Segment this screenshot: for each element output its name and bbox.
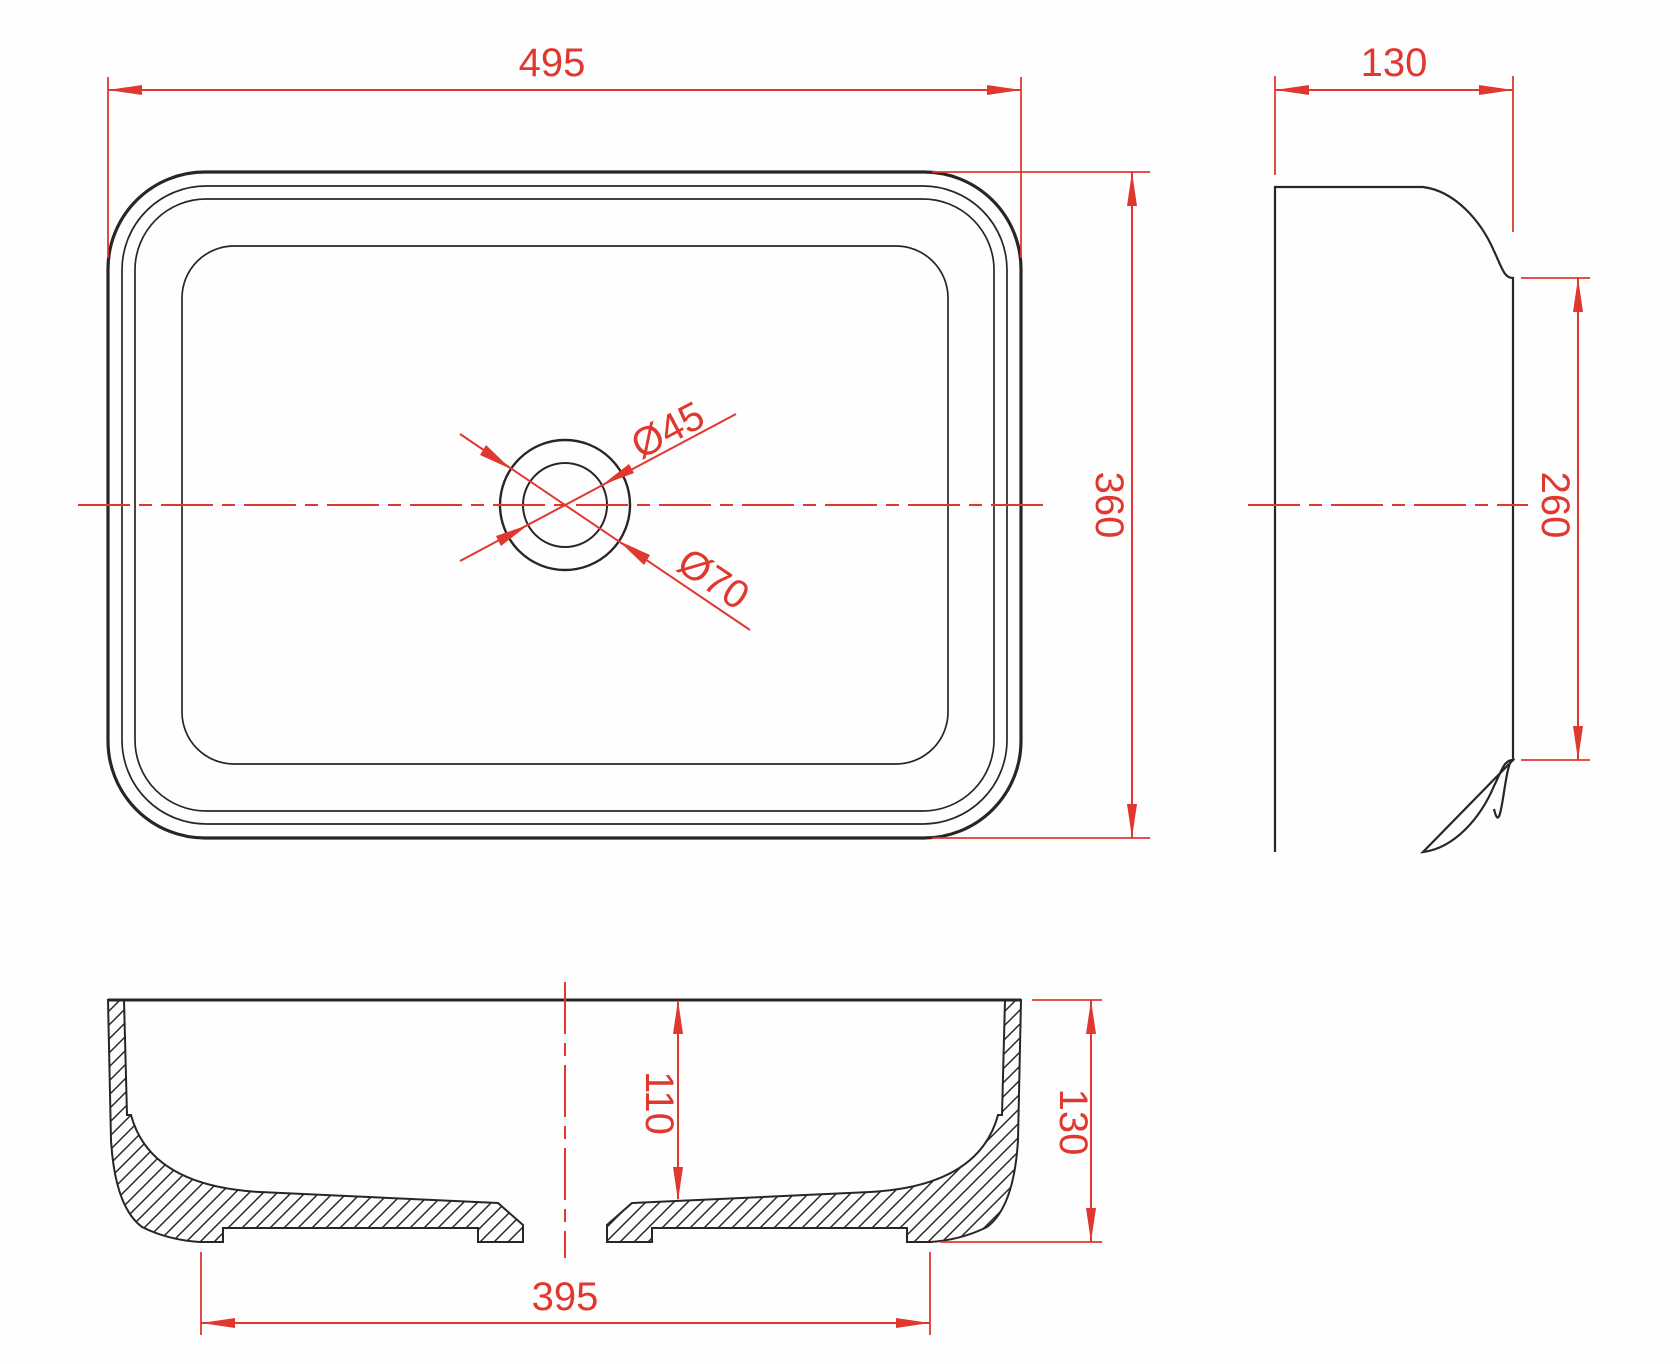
dim-section-bowl-depth: 110 <box>637 1000 683 1201</box>
dim-section-bowl-depth-label: 110 <box>637 1071 681 1135</box>
dim-plan-width-label: 495 <box>519 41 586 85</box>
side-profile-outline <box>1275 187 1513 852</box>
dim-arrow-left <box>201 1318 235 1328</box>
dim-plan-depth-label: 360 <box>1087 472 1131 539</box>
dim-arrow-right <box>1479 85 1513 95</box>
dim-arrow-on-outer-circle-se <box>619 541 650 565</box>
dim-arrow-down <box>673 1167 683 1201</box>
dim-section-base-width-label: 395 <box>532 1275 599 1319</box>
section-left-wall-hatched <box>108 1000 523 1242</box>
section-view: 110 130 395 <box>108 982 1102 1335</box>
dim-side-thickness-label: 130 <box>1361 41 1428 85</box>
dim-plan-width: 495 <box>108 41 1021 258</box>
dim-arrow-down <box>1573 726 1583 760</box>
dim-section-height-label: 130 <box>1051 1089 1095 1156</box>
dim-arrow-right <box>987 85 1021 95</box>
dim-side-thickness: 130 <box>1275 41 1513 232</box>
plan-view: 495 360 Ø45 Ø70 <box>78 41 1150 838</box>
dim-drain-outer-diameter: Ø70 <box>460 434 757 630</box>
dim-arrow-left <box>1275 85 1309 95</box>
dim-drain-inner-label: Ø45 <box>624 393 711 467</box>
dim-side-inner-height-label: 260 <box>1533 472 1577 539</box>
dim-arrow-down <box>1127 804 1137 838</box>
side-view: 130 260 <box>1248 41 1590 852</box>
dim-drain-outer-label: Ø70 <box>670 540 757 619</box>
dim-section-base-width: 395 <box>201 1252 930 1335</box>
dim-drain-inner-diameter: Ø45 <box>460 393 736 561</box>
dim-arrow-on-outer-circle-nw <box>480 445 511 469</box>
dim-arrow-up <box>1127 172 1137 206</box>
dim-side-inner-height: 260 <box>1521 278 1590 760</box>
drawing-sheet: 495 360 Ø45 Ø70 <box>0 0 1680 1364</box>
dim-arrow-up <box>673 1000 683 1034</box>
dim-arrow-down <box>1086 1208 1096 1242</box>
dim-arrow-right <box>896 1318 930 1328</box>
dim-arrow-left <box>108 85 142 95</box>
dim-arrow-up <box>1573 278 1583 312</box>
dim-arrow-up <box>1086 1000 1096 1034</box>
washbasin-technical-drawing: 495 360 Ø45 Ø70 <box>0 0 1680 1364</box>
